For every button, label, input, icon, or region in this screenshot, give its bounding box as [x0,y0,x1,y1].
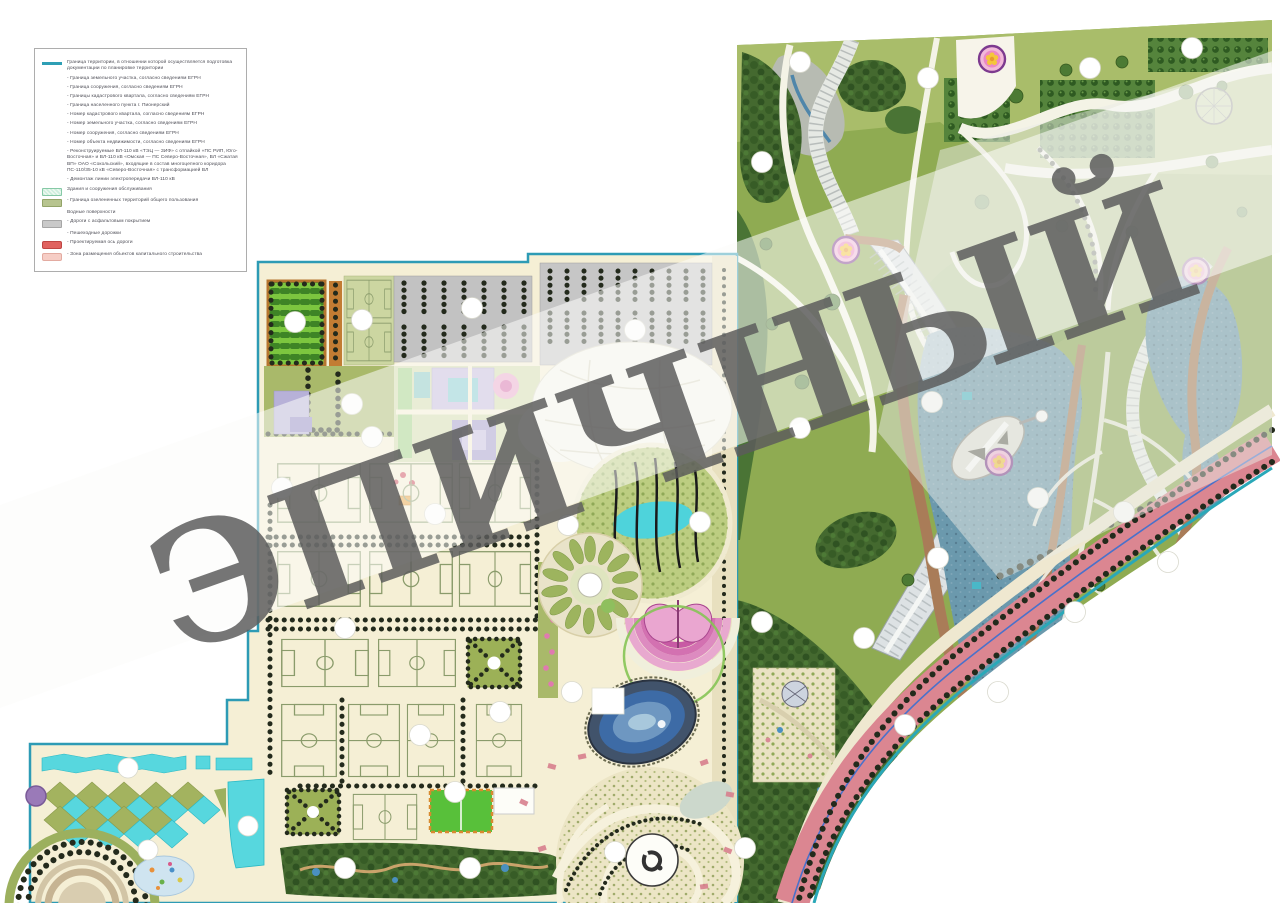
legend-item-public-green: - Граница озелененных территорий общего … [42,198,238,207]
legend-item-service-buildings: Здания и сооружения обслуживания [42,187,238,196]
territory-boundary-line-symbol [42,62,62,65]
legend-item-powerline-reconstruction: - Реконструируемые ВЛ-110 кВ «ТЭЦ — ЗИФ»… [42,149,238,175]
wild-garden-strip [280,843,558,899]
legend-item-settlement-boundary: - Граница населенного пункта г. Пионерск… [42,103,238,109]
legend-item-powerline-dismantling: - Демонтаж линии электропередачи ВЛ-110 … [42,177,238,183]
lazy-river [42,754,186,773]
legend-item-asphalt-roads: - Дороги с асфальтовым покрытием [42,219,238,228]
site-plan-page: ЭПИЧНЫЙ Граница территории, в отношении … [0,0,1280,903]
legend-item-cadastral-quarter-boundary: - Границы кадастрового квартала, согласн… [42,94,238,100]
legend-item-water-surfaces: Водные поверхности [42,210,238,216]
asphalt-road-swatch [42,220,62,228]
public-green-swatch [42,199,62,207]
legend-item-structure-number: - Номер сооружения, согласно сведениям Е… [42,131,238,137]
legend-item-territory-boundary: Граница территории, в отношении которой … [42,60,238,73]
legend-item-capital-construction: - Зона размещения объектов капитального … [42,252,238,261]
label-box [592,688,624,714]
legend-item-structure-boundary: - Граница сооружения, согласно сведениям… [42,85,238,91]
road-axis-swatch [42,241,62,249]
legend-item-parcel-boundary: - Граница земельного участка, согласно с… [42,76,238,82]
service-buildings-swatch [42,188,62,196]
diamond-garden-1 [468,639,520,687]
playground [134,856,194,896]
legend-item-cadastral-quarter-number: - Номер кадастрового квартала, согласно … [42,112,238,118]
legend-item-road-axis: - Проектируемая ось дороги [42,240,238,249]
purple-feature [26,786,46,806]
pavilion-building [494,788,534,814]
formal-garden [753,668,835,782]
legend-item-pedestrian-paths: - Пешеходные дорожки [42,231,238,237]
legend-item-realestate-number: - Номер объекта недвижимости, согласно с… [42,140,238,146]
legend: Граница территории, в отношении которой … [34,48,247,272]
diamond-garden-2 [287,790,339,834]
legend-item-parcel-number: - Номер земельного участка, согласно све… [42,121,238,127]
capital-construction-swatch [42,253,62,261]
